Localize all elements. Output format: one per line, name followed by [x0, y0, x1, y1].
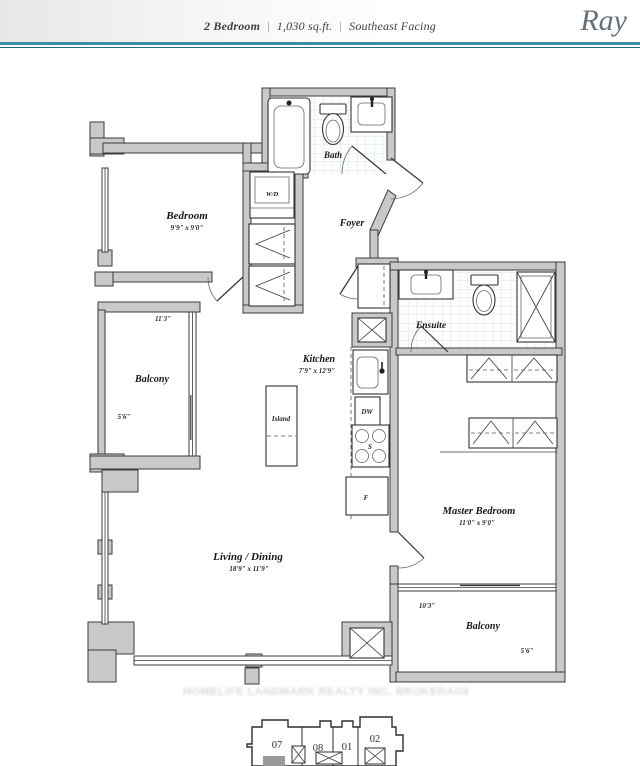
master-bedroom-dims: 11'0" x 9'0" [459, 519, 495, 527]
ensuite-sink [399, 270, 453, 299]
dishwasher: DW [355, 397, 380, 426]
stove-label: S [368, 443, 372, 451]
room-labels: Bath Bedroom 9'9" x 9'0" W/D Foyer Balco… [118, 150, 534, 655]
fridge: F [346, 477, 388, 515]
stove: S [352, 425, 389, 467]
balcony-right-label: Balcony [465, 621, 500, 632]
master-bedroom-label: Master Bedroom [442, 506, 516, 517]
dishwasher-label: DW [360, 408, 373, 416]
walls [88, 88, 565, 684]
tiled-floors [270, 96, 556, 348]
kitchen-dims: 7'9" x 12'9" [299, 367, 335, 375]
keyplan-unit-02: 02 [370, 734, 381, 745]
keyplan-unit-08: 08 [313, 743, 324, 754]
foyer-label: Foyer [339, 218, 365, 229]
keyplan-unit-07: 07 [272, 740, 283, 751]
bedroom-dims: 9'9" x 9'0" [171, 224, 204, 232]
kitchen-label: Kitchen [302, 354, 336, 365]
bedroom-label: Bedroom [165, 210, 208, 222]
living-dining-dims: 18'9" x 11'9" [229, 565, 268, 573]
ensuite-label: Ensuite [415, 321, 447, 331]
keyplan-unit-01: 01 [342, 742, 353, 753]
island-label: Island [271, 415, 291, 423]
laundry-label: W/D [266, 191, 279, 198]
floorplan-page: 2 Bedroom|1,030 sq.ft.|Southeast Facing … [0, 0, 640, 766]
brokerage-watermark: HOMELIFE LANDMARK REALTY INC. BROKERAGE [183, 686, 469, 702]
kitchen-island: Island [266, 386, 297, 466]
balcony-right-depth: 5'6" [521, 647, 534, 655]
living-dining-label: Living / Dining [212, 551, 283, 563]
kitchen-sink [353, 350, 388, 394]
bathtub [268, 98, 310, 174]
shower [517, 272, 555, 342]
linen-closet [249, 224, 295, 306]
window-walls [102, 168, 556, 665]
balcony-left-label: Balcony [134, 374, 169, 385]
keyplan: 07 08 01 02 [247, 717, 403, 766]
foyer-closet [340, 264, 390, 308]
master-closets [440, 355, 557, 452]
balcony-right-width: 10'3" [419, 602, 435, 610]
bath-sink [351, 97, 392, 132]
fridge-label: F [364, 494, 369, 502]
bath-label: Bath [323, 150, 342, 160]
floorplan-drawing: DW S F Island [0, 0, 640, 766]
balcony-left-depth: 5'6" [118, 413, 131, 421]
balcony-left-width: 11'3" [155, 315, 171, 323]
